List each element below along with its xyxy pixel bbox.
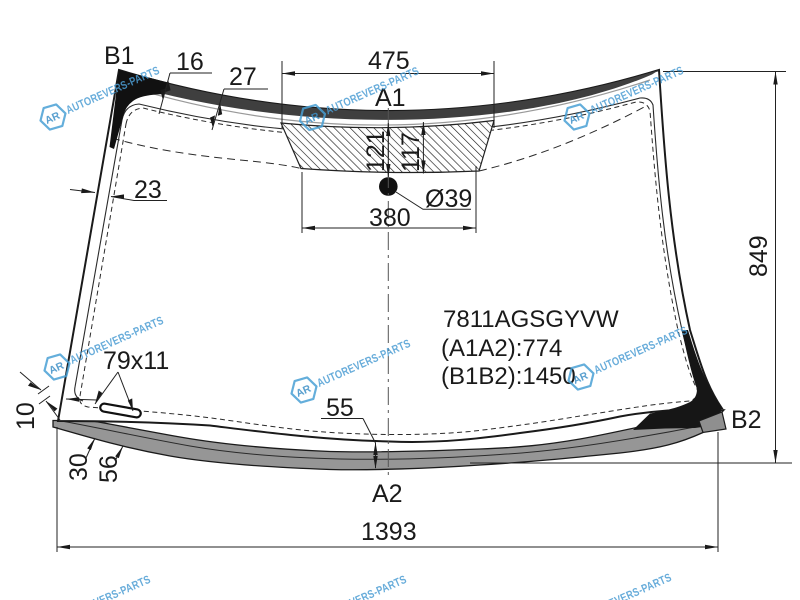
svg-text:23: 23 <box>134 176 162 204</box>
svg-text:55: 55 <box>326 394 354 422</box>
svg-text:(A1A2):774: (A1A2):774 <box>441 335 562 362</box>
svg-text:(B1B2):1450: (B1B2):1450 <box>441 363 576 390</box>
svg-text:79x11: 79x11 <box>103 347 169 375</box>
svg-text:27: 27 <box>229 63 257 91</box>
svg-text:A2: A2 <box>372 480 403 508</box>
svg-text:10: 10 <box>12 402 40 430</box>
svg-text:16: 16 <box>176 48 204 76</box>
svg-text:849: 849 <box>745 235 773 277</box>
svg-text:Ø39: Ø39 <box>425 185 472 213</box>
svg-text:380: 380 <box>369 204 411 232</box>
svg-text:30: 30 <box>65 453 93 481</box>
svg-text:121: 121 <box>362 130 390 172</box>
svg-text:B2: B2 <box>731 406 762 434</box>
svg-text:117: 117 <box>397 132 425 172</box>
svg-text:56: 56 <box>95 455 123 483</box>
svg-text:B1: B1 <box>104 42 135 70</box>
svg-text:1393: 1393 <box>361 518 417 546</box>
svg-text:7811AGSGYVW: 7811AGSGYVW <box>443 306 619 333</box>
